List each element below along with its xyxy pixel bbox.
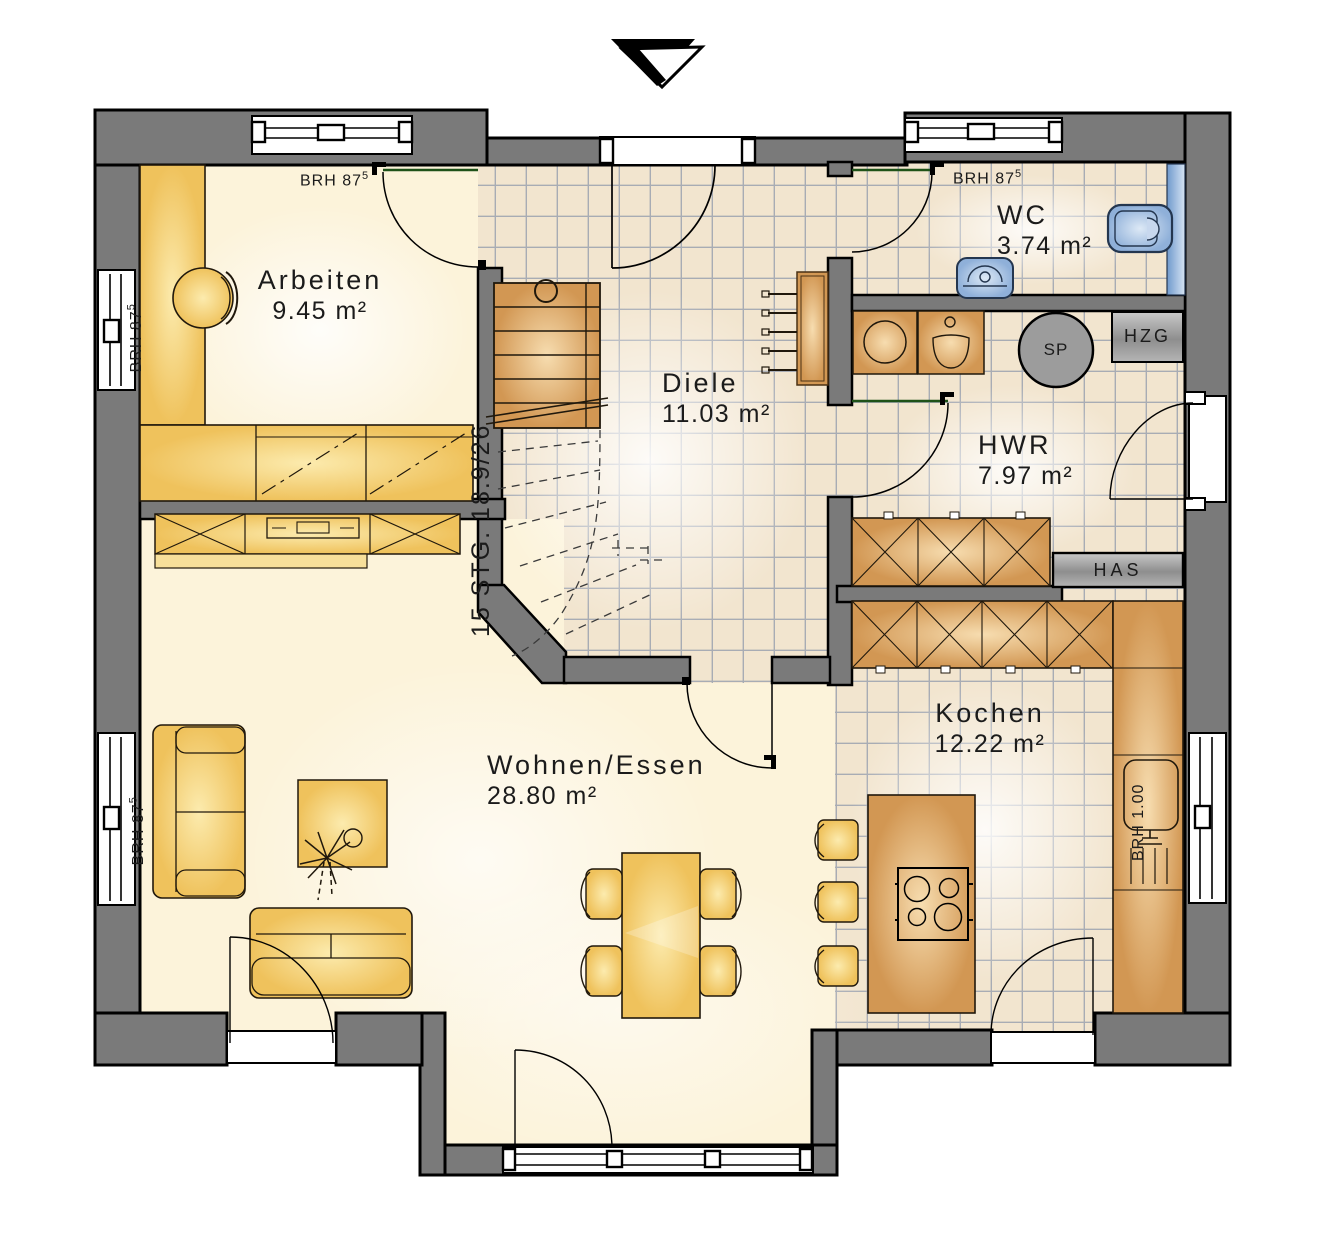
door-terrace-left-opening — [227, 1031, 336, 1063]
toilet — [1108, 205, 1172, 252]
sill-label-wc-top: BRH 875 — [953, 168, 1022, 188]
window-kochen-right — [1189, 733, 1226, 903]
window-terrace-bay — [503, 1147, 813, 1173]
sofa-large — [153, 725, 245, 898]
room-name: Wohnen/Essen — [487, 750, 706, 782]
sill-label-arbeiten-left: BRH 875 — [126, 303, 146, 372]
door-hwr-side-opening — [1185, 392, 1226, 510]
room-area: 12.22 m² — [900, 730, 1080, 760]
floor-plan-ground-floor: Arbeiten 9.45 m² Diele 11.03 m² WC 3.74 … — [0, 0, 1324, 1248]
floor-plan-drawing — [0, 0, 1324, 1248]
has-label: HAS — [1053, 560, 1183, 581]
stairs-label: 15 STG. 18.9/26 — [467, 424, 496, 637]
room-label-hwr: HWR 7.97 m² — [978, 430, 1073, 491]
window-wc-top — [905, 118, 1062, 152]
room-label-arbeiten: Arbeiten 9.45 m² — [235, 265, 405, 326]
bar-stools — [815, 820, 858, 986]
sill-label-wohnen-left: BRH 875 — [128, 796, 148, 865]
wc-sink — [957, 258, 1013, 298]
window-arbeiten-top — [252, 116, 412, 154]
sill-label-kochen-right: BRH 1.00 — [1130, 784, 1148, 861]
room-label-wohnen-essen: Wohnen/Essen 28.80 m² — [487, 750, 706, 811]
room-area: 7.97 m² — [978, 462, 1073, 492]
washing-machine — [853, 311, 917, 374]
sofa-small — [250, 908, 412, 998]
dining-table — [622, 853, 700, 1018]
utility-sink — [918, 311, 984, 374]
room-name: WC — [997, 200, 1092, 232]
room-name: Arbeiten — [235, 265, 405, 297]
entrance-arrow-icon — [611, 39, 702, 87]
sill-label-arbeiten-top: BRH 875 — [300, 170, 369, 190]
hwr-cabinets — [852, 512, 1050, 586]
kitchen-island — [868, 795, 975, 1013]
room-area: 3.74 m² — [997, 232, 1092, 262]
sp-label: SP — [1031, 340, 1081, 360]
room-area: 11.03 m² — [662, 400, 771, 430]
room-label-diele: Diele 11.03 m² — [662, 368, 771, 429]
room-name: HWR — [978, 430, 1073, 462]
room-name: Diele — [662, 368, 771, 400]
door-entrance-opening — [600, 137, 755, 165]
room-name: Kochen — [900, 698, 1080, 730]
hzg-label: HZG — [1112, 326, 1183, 347]
room-area: 9.45 m² — [235, 297, 405, 327]
room-area: 28.80 m² — [487, 782, 706, 812]
room-label-wc: WC 3.74 m² — [997, 200, 1092, 261]
door-kochen-opening — [991, 1032, 1095, 1063]
room-label-kochen: Kochen 12.22 m² — [900, 698, 1080, 759]
